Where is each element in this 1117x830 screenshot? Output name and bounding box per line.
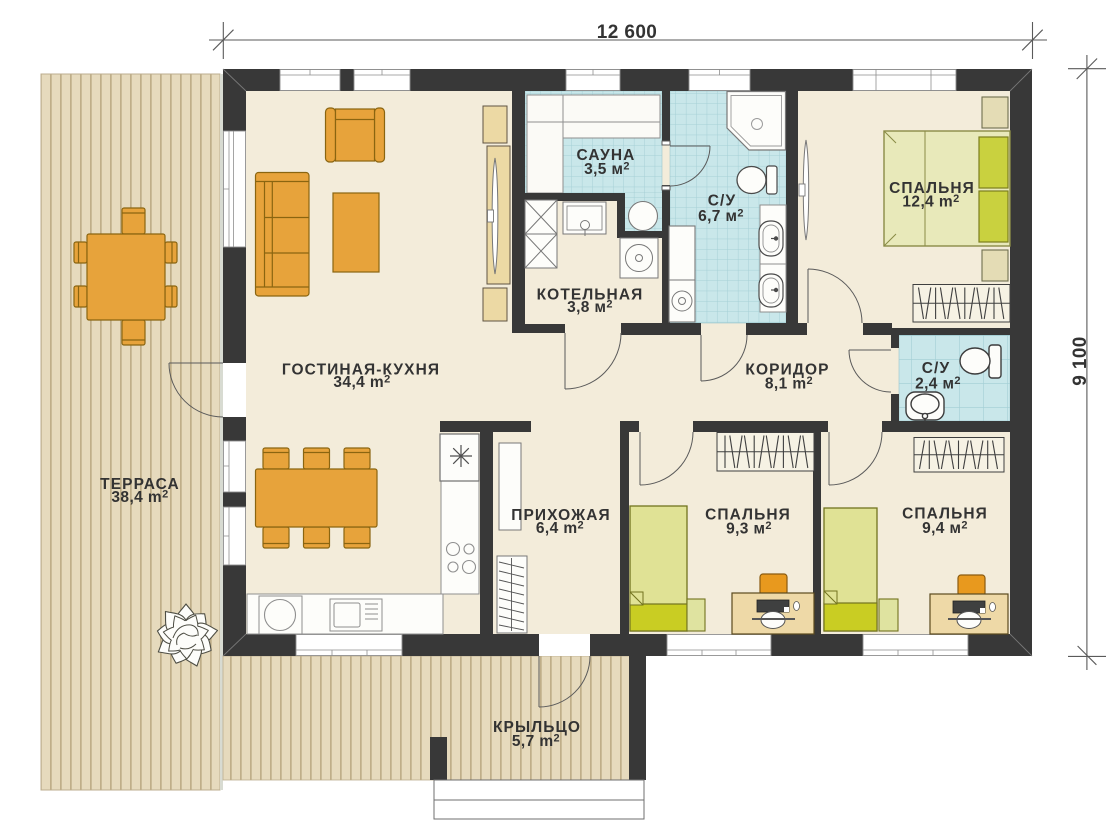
svg-text:9,3 м2: 9,3 м2 — [726, 520, 772, 538]
svg-text:9 100: 9 100 — [1070, 336, 1091, 386]
svg-text:С/У: С/У — [708, 193, 736, 210]
svg-text:С/У: С/У — [922, 360, 950, 377]
svg-text:34,4 m2: 34,4 m2 — [333, 374, 390, 392]
svg-text:38,4 m2: 38,4 m2 — [111, 489, 168, 507]
svg-text:12,4 m2: 12,4 m2 — [902, 193, 959, 211]
svg-text:3,5 м2: 3,5 м2 — [584, 161, 630, 179]
svg-text:9,4 м2: 9,4 м2 — [922, 520, 968, 538]
svg-text:5,7 m2: 5,7 m2 — [512, 733, 560, 751]
svg-text:3,8 м2: 3,8 м2 — [567, 299, 613, 317]
svg-text:12 600: 12 600 — [597, 22, 658, 43]
svg-text:8,1 m2: 8,1 m2 — [765, 375, 813, 393]
svg-text:6,4 m2: 6,4 m2 — [536, 520, 584, 538]
svg-text:6,7 м2: 6,7 м2 — [698, 208, 744, 226]
svg-text:2,4 м2: 2,4 м2 — [915, 375, 961, 393]
